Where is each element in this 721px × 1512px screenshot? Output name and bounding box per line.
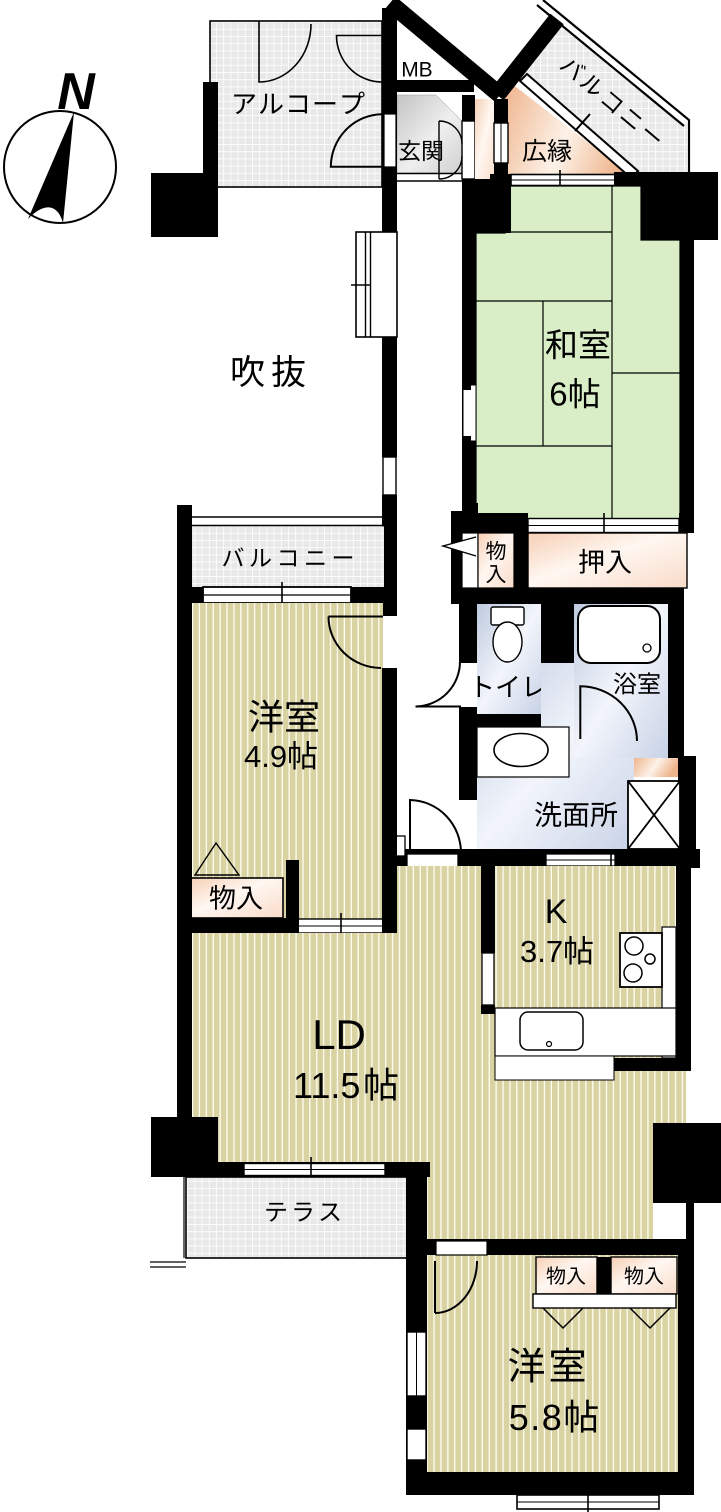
svg-text:11.5: 11.5 xyxy=(293,1065,360,1106)
svg-text:K: K xyxy=(545,893,568,931)
svg-text:3.7: 3.7 xyxy=(520,934,563,969)
svg-text:.: . xyxy=(530,1397,540,1438)
svg-text:8: 8 xyxy=(542,1397,562,1438)
svg-text:N: N xyxy=(57,63,96,121)
svg-text:5: 5 xyxy=(509,1397,529,1438)
svg-text:LD: LD xyxy=(312,1011,366,1058)
svg-text:6: 6 xyxy=(549,376,567,413)
svg-text:4.9: 4.9 xyxy=(244,739,287,774)
svg-text:MB: MB xyxy=(401,59,433,82)
